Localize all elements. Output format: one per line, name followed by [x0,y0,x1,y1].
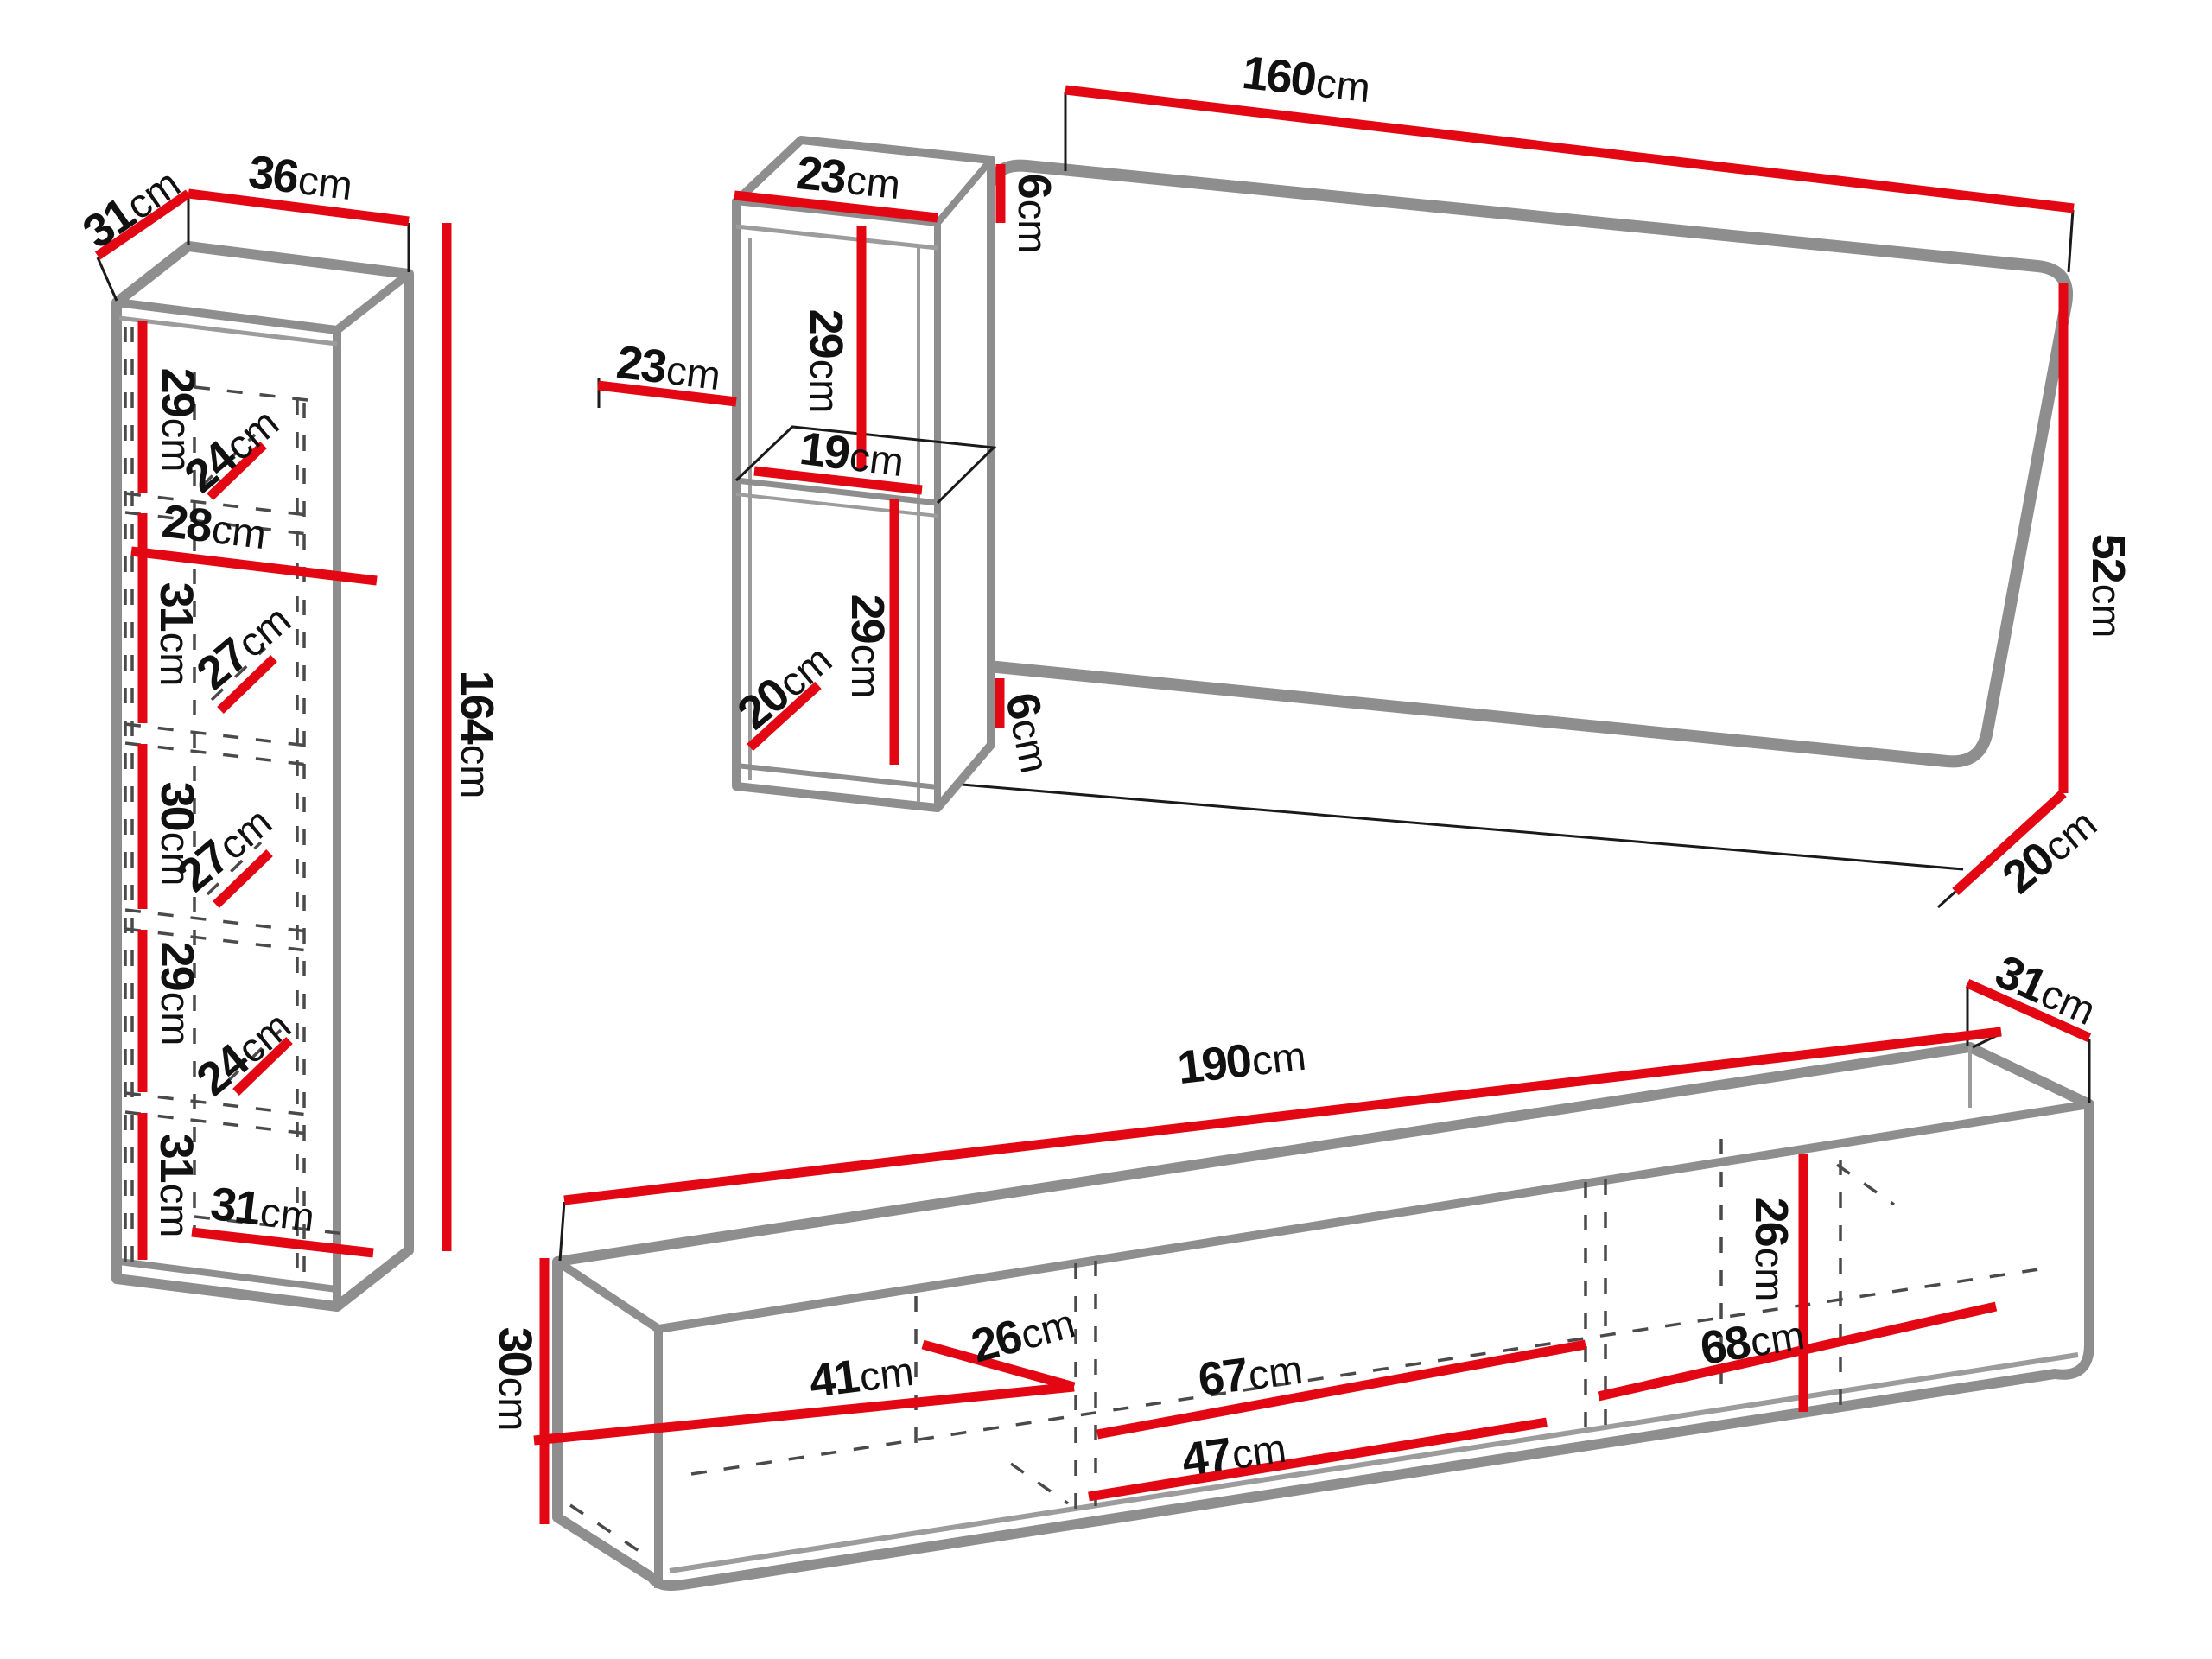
dim-value: 30 [489,1327,541,1376]
dim-unit: cm [1313,59,1372,111]
dim-unit: cm [153,992,199,1046]
dim-value: 29 [842,594,893,643]
dim-value: 41 [806,1351,861,1408]
dim-value: 19 [797,423,851,480]
dim-unit: cm [802,359,848,414]
dim-shelf-lower-height: 29cm [844,594,891,699]
dim-shelf-top-offset: 6cm [1011,174,1058,254]
dim-unit: cm [847,433,906,485]
dim-unit: cm [1229,1425,1288,1478]
dim-unit: cm [664,346,723,398]
dim-tvstand-height: 30cm [492,1327,538,1432]
dim-value: 29 [152,368,204,416]
dim-value: 190 [1175,1034,1253,1094]
dim-value: 31 [150,582,202,631]
dim-value: 31 [207,1178,262,1235]
dim-unit: cm [844,156,903,207]
wall-panel-outline [906,166,2067,762]
dim-unit: cm [453,745,499,799]
dim-value: 164 [451,671,503,743]
dim-cabinet-comp4-height: 29cm [154,942,200,1046]
dim-value: 47 [1179,1428,1234,1486]
dim-unit: cm [1747,1312,1808,1365]
dim-unit: cm [1249,1033,1308,1084]
dim-value: 68 [1697,1316,1753,1375]
dim-cabinet-comp5-height: 31cm [153,1134,200,1238]
dim-cabinet-height: 164cm [454,671,500,799]
dim-unit: cm [152,1184,198,1238]
dim-value: 67 [1195,1349,1249,1406]
tv-stand-outline [557,1047,2089,1586]
dim-value: 6 [1008,174,1060,198]
dim-value: 36 [245,146,300,203]
dim-value: 30 [151,782,203,830]
dim-unit: cm [843,645,889,699]
diagram-line-art [0,0,2212,1659]
dim-unit: cm [2084,584,2130,639]
dim-value: 23 [794,147,848,204]
dim-shelf-top-width: 23cm [794,149,903,207]
dim-value: 31 [150,1134,202,1182]
dim-value: 28 [159,495,213,552]
dim-shelf-upper-height: 29cm [803,309,849,414]
dim-value: 29 [151,942,203,990]
dim-unit: cm [1246,1346,1306,1398]
dim-value: 29 [800,309,852,358]
dim-unit: cm [1747,1248,1793,1302]
dim-value: 26 [1745,1198,1797,1246]
dim-unit: cm [209,505,269,557]
dim-unit: cm [257,1188,317,1240]
dim-tvstand-interior-height: 26cm [1748,1198,1795,1302]
dim-panel-height: 52cm [2085,534,2132,639]
dim-unit: cm [296,156,355,208]
dim-unit: cm [857,1348,917,1400]
dim-unit: cm [1010,200,1056,254]
dim-value: 52 [2082,534,2134,582]
dim-value: 23 [613,336,668,393]
dim-unit: cm [491,1377,537,1432]
dim-cabinet-comp2-height: 31cm [153,582,200,687]
furniture-dimension-diagram: 31cm 36cm 164cm 29cm 24cm 28cm 31cm 27cm… [0,0,2212,1659]
dim-value: 160 [1240,47,1318,106]
